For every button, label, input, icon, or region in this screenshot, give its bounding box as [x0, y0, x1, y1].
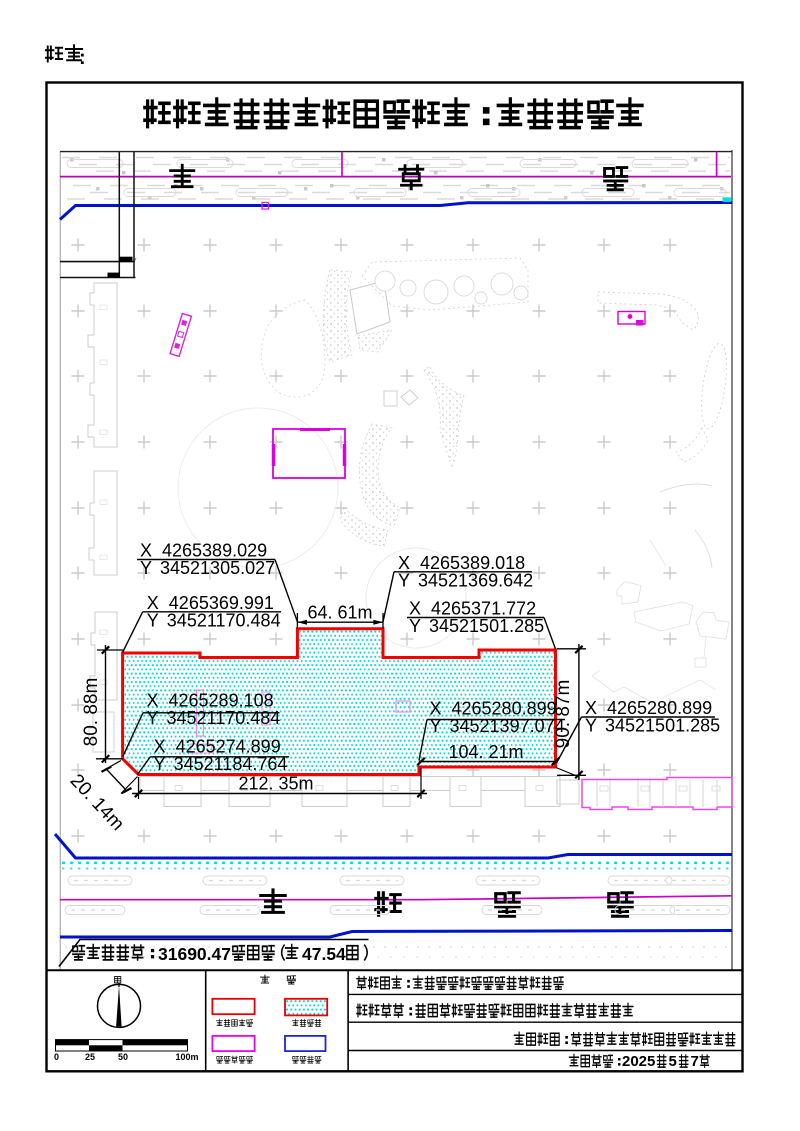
- svg-text:7: 7: [134, 258, 137, 264]
- svg-text:7: 7: [691, 1053, 699, 1070]
- svg-text:34521170.484: 34521170.484: [167, 708, 281, 728]
- svg-text:212. 35m: 212. 35m: [238, 774, 313, 794]
- svg-text:34521501.285: 34521501.285: [429, 616, 544, 636]
- svg-text:Y: Y: [147, 708, 159, 728]
- svg-text::: :: [79, 47, 86, 69]
- svg-text:64. 61m: 64. 61m: [307, 603, 372, 623]
- svg-text:Y: Y: [147, 611, 159, 631]
- svg-text:25: 25: [85, 1052, 95, 1062]
- svg-text:Y: Y: [409, 616, 421, 636]
- svg-text:34521369.642: 34521369.642: [418, 570, 533, 590]
- svg-text:100m: 100m: [175, 1052, 198, 1062]
- svg-text:80. 88m: 80. 88m: [81, 678, 102, 747]
- svg-text:2025: 2025: [622, 1053, 655, 1070]
- svg-text:47.54: 47.54: [302, 944, 346, 964]
- svg-text:34521501.285: 34521501.285: [605, 715, 720, 735]
- svg-text:0: 0: [54, 1052, 59, 1062]
- svg-text:31690.47: 31690.47: [158, 944, 231, 964]
- svg-text:104. 21m: 104. 21m: [448, 742, 523, 762]
- svg-text:Y: Y: [398, 571, 410, 591]
- svg-text:90. 87m: 90. 87m: [553, 680, 574, 749]
- svg-text:Y: Y: [140, 558, 152, 578]
- svg-text:34521305.027: 34521305.027: [160, 558, 275, 578]
- svg-text:34521170.484: 34521170.484: [167, 610, 281, 630]
- svg-text:Y: Y: [585, 716, 597, 736]
- svg-text:50: 50: [118, 1052, 128, 1062]
- svg-text:5: 5: [669, 1053, 677, 1070]
